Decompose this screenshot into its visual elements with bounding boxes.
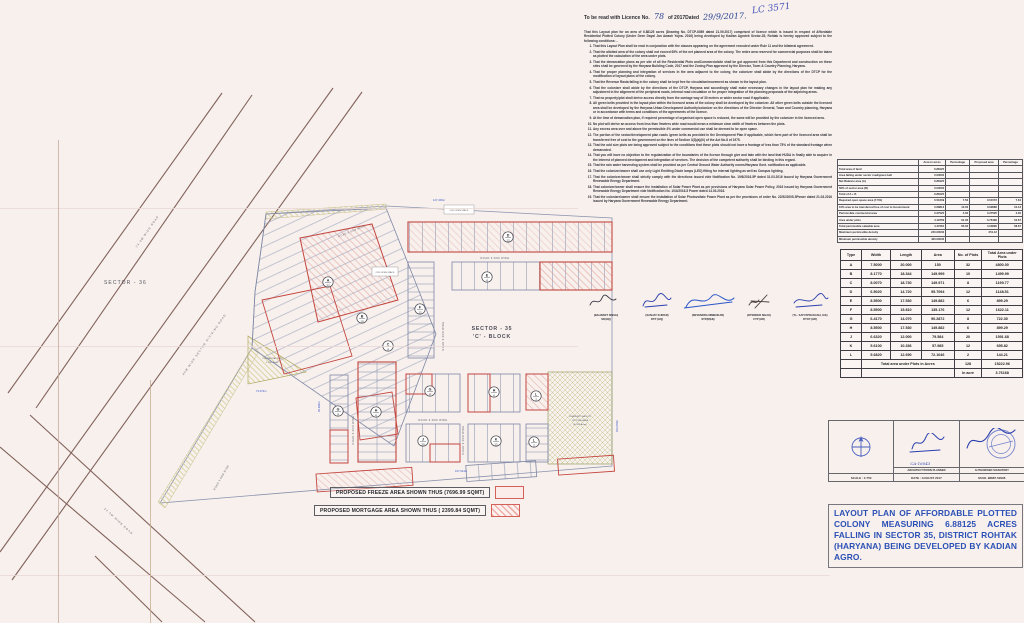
- table-cell: 5.6820: [862, 351, 891, 360]
- table-cell: [998, 236, 1022, 242]
- condition-item: That for proper planning and integration…: [593, 70, 832, 79]
- svg-text:J: J: [422, 437, 424, 441]
- table-cell: 899.29: [982, 297, 1023, 306]
- plots-summary-table: Type Width Length Area No. of Plots Tota…: [840, 249, 1023, 378]
- svg-text:ROAD 9.00M WIDE: ROAD 9.00M WIDE: [212, 464, 230, 491]
- architect-registration: CA-16043: [910, 461, 930, 466]
- table-cell: B: [841, 270, 862, 279]
- svg-text:12: 12: [494, 442, 498, 446]
- table-cell: 32: [954, 261, 982, 270]
- condition-item: That the demarcation plans as per site o…: [593, 60, 832, 69]
- scan-crease: [0, 208, 578, 209]
- table-cell: 17.530: [891, 297, 922, 306]
- signature-row: (BALWANT SINGH)SD(HQ) (SANJAY KUMAR)DTP …: [582, 293, 834, 321]
- table-cell: 5.6100: [862, 342, 891, 351]
- table-cell: 1499.99: [982, 270, 1023, 279]
- area-statement-table: Area in acres Percentage Proposed area P…: [837, 159, 1023, 243]
- table-cell: C: [841, 279, 862, 288]
- table-cell: 722.30: [982, 315, 1023, 324]
- table-cell: 149.882: [921, 324, 954, 333]
- condition-item: That the colonizer/owner shall strictly …: [593, 175, 832, 184]
- approval-intro-paragraph: That this Layout plan for an area of 6.8…: [584, 30, 832, 43]
- scanned-layout-plan-sheet: COMMERCIAL SITE 1.1732 Acres COMMUNITY F…: [0, 0, 1024, 623]
- condition-item: All green belts provided in the layout p…: [593, 101, 832, 114]
- plot-type-marker: K12: [491, 436, 501, 447]
- table-cell: 10.336: [891, 342, 922, 351]
- table-cell: [970, 236, 999, 242]
- table-row: J6.632012.00079.584201591.68: [841, 333, 1023, 342]
- table-row: K5.610010.33657.98512695.82: [841, 342, 1023, 351]
- svg-text:127.406m: 127.406m: [433, 198, 446, 202]
- svg-text:74.072m: 74.072m: [256, 389, 267, 393]
- svg-text:ROAD 9.00M WIDE: ROAD 9.00M WIDE: [419, 418, 448, 422]
- table-cell: 17.530: [891, 324, 922, 333]
- table-cell: L: [841, 351, 862, 360]
- svg-text:ROAD 9.00M WIDE: ROAD 9.00M WIDE: [481, 256, 510, 260]
- table-cell: 12: [954, 288, 982, 297]
- plot-type-marker: D12: [503, 232, 513, 243]
- table-cell: 149.971: [921, 279, 954, 288]
- title-block: SCALE : 1:750 CA-16043 ARCHITECT/TOWN PL…: [828, 420, 1024, 482]
- table-cell: 135.176: [921, 306, 954, 315]
- title-block-architect-cell: CA-16043 ARCHITECT/TOWN PLANNER DATE : A…: [894, 421, 959, 481]
- plot-type-marker: H6: [489, 387, 499, 398]
- signature-squiggle: [790, 293, 830, 309]
- scan-fold-line: [150, 380, 151, 623]
- plot-type-marker: G8: [333, 406, 343, 417]
- svg-text:K: K: [495, 437, 498, 441]
- licence-number-handwritten: 78: [654, 12, 664, 21]
- table-row: D6.502014.72095.7094121148.51: [841, 288, 1023, 297]
- condition-item: That the Revenue Rasta falling in the co…: [593, 80, 832, 84]
- scan-crease: [0, 346, 578, 347]
- table-row: Minimum permissible density400.00000: [838, 236, 1023, 242]
- legend-freeze: PROPOSED FREEZE AREA SHOWN THUS (7696.99…: [330, 486, 524, 499]
- svg-text:45.380m: 45.380m: [317, 401, 321, 412]
- licence-middle: of 2017Dated: [668, 15, 699, 21]
- svg-text:ORG OPEN SPACE: ORG OPEN SPACE: [450, 209, 469, 212]
- table-cell: F: [841, 306, 862, 315]
- project-title-box: LAYOUT PLAN OF AFFORDABLE PLOTTED COLONY…: [828, 504, 1023, 568]
- title-block-authorised-cell: AUTHORISED SIGNATORY M.NO. 98887-52996: [960, 421, 1024, 481]
- table-cell: 12.690: [891, 351, 922, 360]
- table-cell: 20: [954, 333, 982, 342]
- table-cell: 8.5500: [862, 306, 891, 315]
- table-cell: 4800.00: [982, 261, 1023, 270]
- svg-text:24.0M WIDE ROAD: 24.0M WIDE ROAD: [135, 215, 160, 249]
- table-cell: 15.810: [891, 306, 922, 315]
- table-cell: 90.2872: [921, 315, 954, 324]
- svg-text:OF TOTAL AREA: OF TOTAL AREA: [572, 419, 589, 422]
- condition-item: That colonizer/owner shall ensure the in…: [593, 185, 832, 194]
- table-cell: 12: [954, 306, 982, 315]
- plot-type-marker: G8: [425, 386, 435, 397]
- table-cell: 95.7094: [921, 288, 954, 297]
- signature-jitender-sihag: (JITENDER SIHAG)CTP (HR): [735, 293, 783, 321]
- licence-prefix: To be read with Licence No.: [584, 15, 650, 21]
- plots-in-acre-row: In acre 3.76168: [841, 369, 1023, 378]
- licence-date-handwritten: 29/9/2017.: [703, 11, 747, 22]
- legend-freeze-label: PROPOSED FREEZE AREA SHOWN THUS (7696.99…: [330, 487, 490, 498]
- table-cell: 8.0070: [862, 279, 891, 288]
- condition-item: At the time of demarcation plan, if requ…: [593, 116, 832, 120]
- condition-item: That the allotted area of the colony sha…: [593, 50, 832, 59]
- scale-label: SCALE : 1:750: [829, 473, 893, 481]
- mortgage-area-swatch: [491, 504, 520, 517]
- table-cell: 150: [921, 261, 954, 270]
- signature-balwant-singh: (BALWANT SINGH)SD(HQ): [582, 293, 630, 321]
- svg-text:COMMUNITY FACILITY: COMMUNITY FACILITY: [569, 415, 592, 418]
- svg-text:24.0M WIDE ROAD: 24.0M WIDE ROAD: [103, 507, 134, 536]
- condition-item: That the colonizer shall abide by the di…: [593, 86, 832, 95]
- signature-squiggle: [586, 293, 626, 309]
- table-cell: 8: [954, 279, 982, 288]
- table-cell: 144.21: [982, 351, 1023, 360]
- table-cell: 899.29: [982, 324, 1023, 333]
- table-cell: E: [841, 297, 862, 306]
- legend-mortgage-label: PROPOSED MORTGAGE AREA SHOWN THUS ( 2399…: [314, 505, 486, 516]
- signature-squiggle: [741, 293, 777, 309]
- svg-text:167.914m: 167.914m: [455, 469, 468, 473]
- table-cell: 6: [954, 297, 982, 306]
- table-cell: 8.5500: [862, 297, 891, 306]
- condition-item: That the colonizer/owner shall ensure th…: [593, 195, 832, 204]
- svg-text:12: 12: [418, 310, 422, 314]
- table-cell: 18.730: [891, 279, 922, 288]
- legend-mortgage: PROPOSED MORTGAGE AREA SHOWN THUS ( 2399…: [314, 504, 520, 517]
- table-cell: 79.584: [921, 333, 954, 342]
- svg-text:10: 10: [360, 319, 364, 323]
- condition-item: That you will have no objection to the r…: [593, 153, 832, 162]
- svg-text:G: G: [337, 407, 340, 411]
- table-cell: 1199.77: [982, 279, 1023, 288]
- table-cell: 400.00000: [918, 236, 945, 242]
- svg-text:12: 12: [506, 238, 510, 242]
- sector-36-label: SECTOR - 36: [104, 280, 147, 286]
- svg-text:ROAD 9.00M WIDE: ROAD 9.00M WIDE: [461, 426, 465, 455]
- sector-35-label: SECTOR - 35 'C' - BLOCK: [472, 326, 513, 340]
- project-title: LAYOUT PLAN OF AFFORDABLE PLOTTED COLONY…: [834, 508, 1017, 563]
- svg-text:'C' - BLOCK: 'C' - BLOCK: [473, 334, 511, 340]
- plot-type-marker: A32: [323, 277, 333, 288]
- signature-squiggle: [637, 293, 677, 309]
- condition-item: No plot will derive an access from less …: [593, 122, 832, 126]
- table-cell: 6: [954, 324, 982, 333]
- table-row: B8.177018.344149.999101499.99: [841, 270, 1023, 279]
- condition-item: That the odd size plots are being approv…: [593, 143, 832, 152]
- svg-text:H: H: [493, 388, 496, 392]
- table-cell: Minimum permissible density: [838, 236, 919, 242]
- scan-crease: [0, 575, 830, 576]
- community-facility: COMMUNITY FACILITY OF TOTAL AREA (0.5157…: [548, 372, 612, 464]
- table-cell: 8: [954, 315, 982, 324]
- green-belt-left: [158, 348, 258, 508]
- table-cell: 18.344: [891, 270, 922, 279]
- table-cell: G: [841, 315, 862, 324]
- table-cell: 8.5500: [862, 324, 891, 333]
- licence-header: To be read with Licence No. 78 of 2017Da…: [584, 12, 834, 21]
- signature-devendra-nimbokar: (DEVENDRA NIMBOKAR)STP(M)HQ: [684, 293, 732, 321]
- north-arrow-icon: [848, 434, 874, 460]
- table-header-row: Type Width Length Area No. of Plots Tota…: [841, 250, 1023, 261]
- table-cell: 6.4170: [862, 315, 891, 324]
- table-row: H8.550017.530149.8826899.29: [841, 324, 1023, 333]
- table-cell: 1622.11: [982, 306, 1023, 315]
- table-cell: 10: [954, 270, 982, 279]
- plot-type-marker: L2: [529, 437, 539, 448]
- table-row: E8.550017.530149.8826899.29: [841, 297, 1023, 306]
- svg-text:ROAD 9.00M WIDE: ROAD 9.00M WIDE: [351, 416, 355, 445]
- plot-type-marker: E6: [482, 272, 492, 283]
- sheet-edge-line: [58, 140, 59, 623]
- svg-text:(0.5157 Acres): (0.5157 Acres): [573, 423, 587, 426]
- condition-item: That the colonizer/owner shall use only …: [593, 169, 832, 173]
- svg-text:32: 32: [326, 283, 330, 287]
- mobile-label: M.NO. 98887-52996: [960, 473, 1024, 481]
- table-cell: A: [841, 261, 862, 270]
- table-cell: 7.5000: [862, 261, 891, 270]
- condition-item: The portion of the sector/development pl…: [593, 133, 832, 142]
- table-cell: 14.720: [891, 288, 922, 297]
- table-cell: 57.985: [921, 342, 954, 351]
- plot-strip-second: [452, 262, 612, 290]
- table-cell: K: [841, 342, 862, 351]
- plot-type-marker: L2: [531, 391, 541, 402]
- table-cell: 149.882: [921, 297, 954, 306]
- signature-satyaprakash: (T.L. SATYAPRAKASH, IAS)DTCP (HR): [786, 293, 834, 321]
- svg-text:A: A: [327, 278, 330, 282]
- condition-item: That no property/plot shall derive acces…: [593, 96, 832, 100]
- table-cell: 2: [954, 351, 982, 360]
- plot-type-marker: H6: [371, 407, 381, 418]
- svg-text:D: D: [507, 233, 510, 237]
- table-cell: 20.000: [891, 261, 922, 270]
- title-block-scale-cell: SCALE : 1:750: [829, 421, 894, 481]
- table-cell: 12.000: [891, 333, 922, 342]
- date-label: DATE : AUGUST 2017: [894, 473, 958, 481]
- svg-text:20: 20: [421, 442, 425, 446]
- table-row: C8.007018.730149.97181199.77: [841, 279, 1023, 288]
- architect-signature: [904, 433, 948, 455]
- svg-text:H: H: [375, 408, 378, 412]
- condition-item: That this Layout Plan shall be read in c…: [593, 44, 832, 48]
- signature-squiggle: [684, 293, 736, 309]
- svg-text:163.078m: 163.078m: [615, 419, 619, 432]
- table-cell: 14.070: [891, 315, 922, 324]
- svg-text:SECTOR - 35: SECTOR - 35: [472, 326, 513, 332]
- freeze-area-swatch: [495, 486, 524, 499]
- licence-conditions: That this Layout Plan shall be read in c…: [584, 44, 832, 205]
- table-cell: D: [841, 288, 862, 297]
- plot-type-marker: B10: [357, 313, 367, 324]
- table-cell: [946, 236, 970, 242]
- plot-column-lower-left: [330, 375, 348, 463]
- table-cell: 1148.51: [982, 288, 1023, 297]
- table-cell: 12: [954, 342, 982, 351]
- table-cell: 6.5020: [862, 288, 891, 297]
- condition-item: Any excess area over and above the permi…: [593, 127, 832, 131]
- table-cell: 8.1770: [862, 270, 891, 279]
- table-row: F8.550015.810135.176121622.11: [841, 306, 1023, 315]
- authorised-signature-and-stamp: [963, 428, 1021, 460]
- table-row: G6.417014.07090.28728722.30: [841, 315, 1023, 324]
- plot-type-marker: J20: [418, 436, 428, 447]
- plots-total-row: Total area under Plots in Acres 128 1522…: [841, 360, 1023, 369]
- plot-type-marker: F12: [415, 304, 425, 315]
- svg-text:ORG OPEN SPACE: ORG OPEN SPACE: [376, 271, 395, 274]
- svg-text:45M WIDE SECTOR DIVIDING ROAD: 45M WIDE SECTOR DIVIDING ROAD: [181, 313, 227, 376]
- table-row: A7.500020.000150324800.00: [841, 261, 1023, 270]
- table-cell: H: [841, 324, 862, 333]
- table-cell: 149.999: [921, 270, 954, 279]
- table-cell: 6.6320: [862, 333, 891, 342]
- table-cell: 695.82: [982, 342, 1023, 351]
- table-cell: 1591.68: [982, 333, 1023, 342]
- table-cell: 72.1046: [921, 351, 954, 360]
- table-row: L5.682012.69072.10462144.21: [841, 351, 1023, 360]
- table-cell: J: [841, 333, 862, 342]
- condition-item: That the rain water harvesting system sh…: [593, 163, 832, 167]
- signature-sanjay-kumar: (SANJAY KUMAR)DTP (HQ): [633, 293, 681, 321]
- svg-text:B: B: [361, 314, 364, 318]
- svg-text:G: G: [429, 387, 432, 391]
